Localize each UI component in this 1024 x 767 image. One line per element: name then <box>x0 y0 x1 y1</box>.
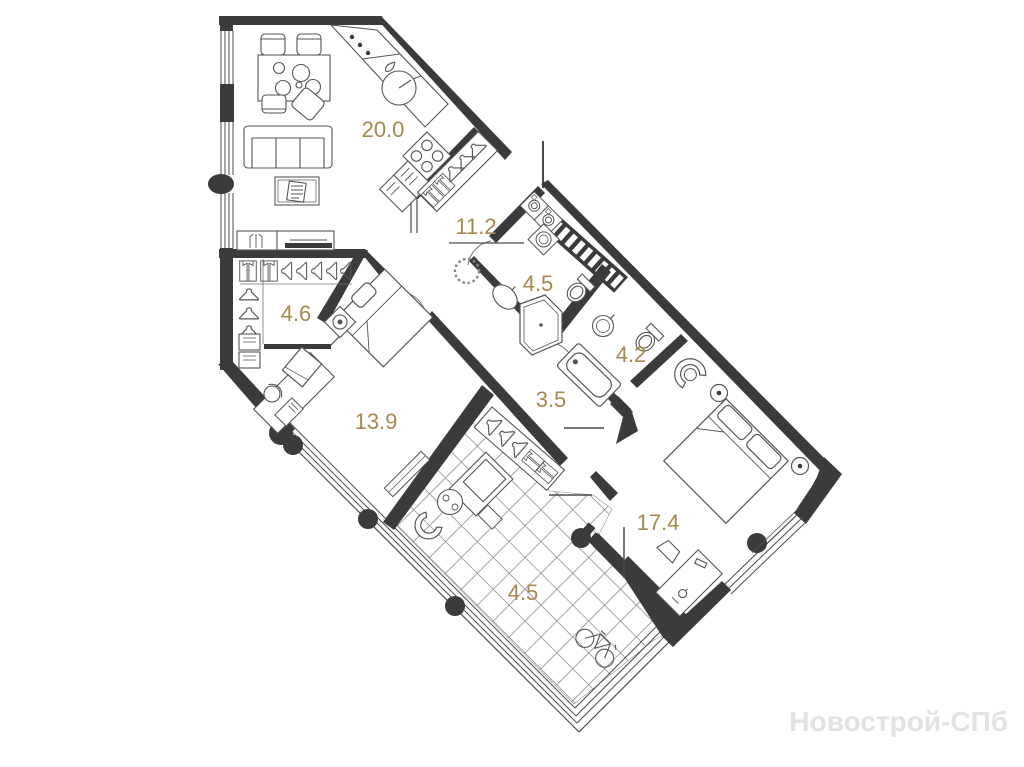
svg-text:4.2: 4.2 <box>616 342 647 367</box>
svg-text:3.5: 3.5 <box>536 387 567 412</box>
svg-text:4.5: 4.5 <box>523 271 554 296</box>
svg-text:20.0: 20.0 <box>362 117 405 142</box>
svg-text:11.2: 11.2 <box>455 214 496 239</box>
svg-text:17.4: 17.4 <box>637 510 680 535</box>
svg-text:4.5: 4.5 <box>508 580 539 605</box>
svg-text:4.6: 4.6 <box>281 301 312 326</box>
svg-text:Новострой-СПб: Новострой-СПб <box>789 706 1008 737</box>
svg-text:13.9: 13.9 <box>355 409 398 434</box>
